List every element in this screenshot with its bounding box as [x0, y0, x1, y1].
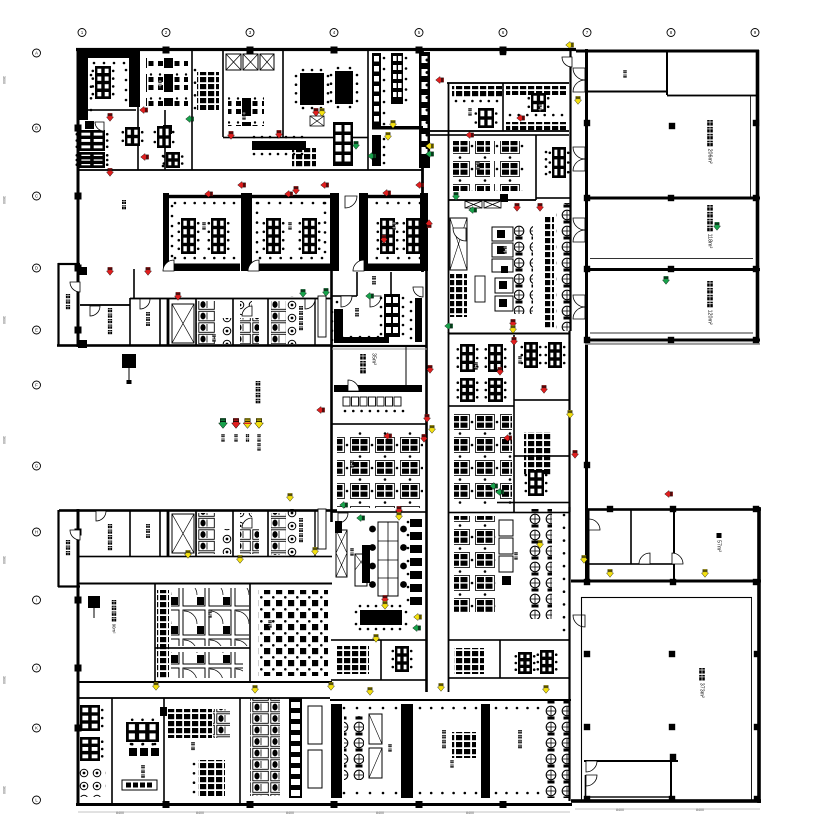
svg-text:H: H: [35, 530, 38, 535]
svg-text:G: G: [35, 464, 38, 469]
svg-text:F: F: [35, 383, 38, 388]
svg-text:3600: 3600: [2, 76, 6, 84]
svg-text:B: B: [35, 126, 38, 131]
svg-text:3600: 3600: [2, 556, 6, 564]
svg-text:E: E: [35, 328, 38, 333]
svg-text:8400: 8400: [116, 811, 124, 815]
svg-text:I: I: [36, 598, 37, 603]
svg-text:K: K: [35, 726, 38, 731]
svg-text:206m²: 206m²: [706, 149, 712, 164]
svg-text:8400: 8400: [196, 811, 204, 815]
svg-text:8400: 8400: [466, 811, 474, 815]
svg-text:90m²: 90m²: [112, 624, 117, 634]
svg-text:8400: 8400: [616, 808, 624, 812]
svg-text:D: D: [35, 266, 38, 271]
svg-text:3600: 3600: [2, 786, 6, 794]
svg-text:120m²: 120m²: [706, 310, 712, 325]
svg-text:3600: 3600: [2, 316, 6, 324]
svg-text:A: A: [35, 51, 38, 56]
svg-text:373m²: 373m²: [698, 683, 704, 698]
svg-text:118m²: 118m²: [706, 234, 712, 249]
svg-text:J: J: [35, 666, 37, 671]
svg-text:8400: 8400: [696, 808, 704, 812]
svg-text:3600: 3600: [2, 196, 6, 204]
svg-text:C: C: [35, 194, 38, 199]
svg-text:57m²: 57m²: [715, 540, 721, 552]
svg-text:8400: 8400: [376, 811, 384, 815]
svg-text:3600: 3600: [2, 436, 6, 444]
svg-text:8400: 8400: [286, 811, 294, 815]
svg-text:3600: 3600: [2, 676, 6, 684]
svg-text:35m²: 35m²: [370, 353, 376, 365]
